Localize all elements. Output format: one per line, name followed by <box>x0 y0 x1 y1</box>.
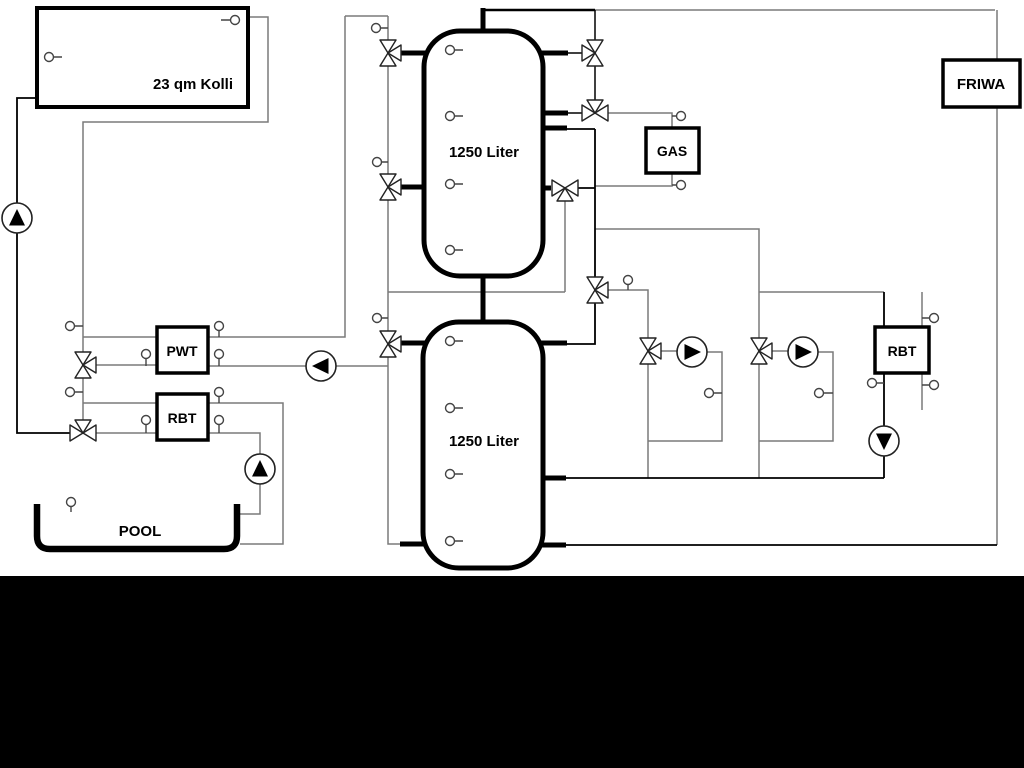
tank-charge-pump-icon <box>306 351 336 381</box>
tank-upper-label: 1250 Liter <box>449 144 519 161</box>
pool-pump-icon <box>245 454 275 484</box>
heating-pump-1-icon <box>677 337 707 367</box>
heating-pump-2-icon <box>788 337 818 367</box>
rbt-heating-label: RBT <box>888 343 917 359</box>
hydraulic-schematic: 23 qm Kolli 1250 Liter 1250 Liter PWT RB… <box>0 0 1024 768</box>
pool-label: POOL <box>119 523 162 540</box>
gas-label: GAS <box>657 143 687 159</box>
tank-lower-label: 1250 Liter <box>449 433 519 450</box>
letterbox-bottom <box>0 576 1024 768</box>
solar-pump-icon <box>2 203 32 233</box>
collector-label: 23 qm Kolli <box>153 76 233 93</box>
pwt-label: PWT <box>166 343 198 359</box>
rbt-heating-pump-icon <box>869 426 899 456</box>
friwa-label: FRIWA <box>957 76 1005 93</box>
rbt-solar-label: RBT <box>168 410 197 426</box>
schematic-canvas: 23 qm Kolli 1250 Liter 1250 Liter PWT RB… <box>0 0 1024 768</box>
